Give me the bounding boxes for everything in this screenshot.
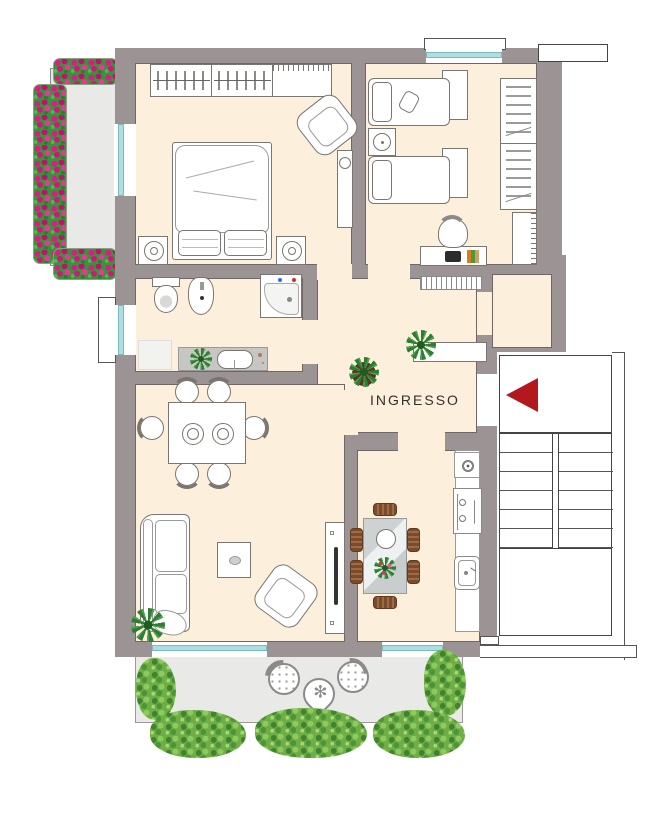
dining-table [168,402,246,464]
pillow-crease [228,247,264,248]
soap-dots [258,353,262,357]
bidet-tap [200,282,204,290]
balcony-door-window [118,124,124,196]
sofa-cushion [155,574,187,614]
washing-machine [138,340,172,370]
books-icon [467,250,479,263]
wardrobe-second [500,78,537,210]
shelf-unit [512,212,537,265]
toy-on-bed [397,89,421,114]
desk-chair-back [437,215,467,245]
terrace-bush-row-1 [150,710,246,758]
faucet-dot [459,499,466,506]
console-plant-icon [406,330,436,360]
dining-chair [207,462,231,486]
kitchen-chair [350,528,363,552]
floor-plant-icon [349,357,379,387]
dining-chair [175,380,199,404]
laptop-icon [445,251,461,262]
kitchen-chair [350,560,363,584]
bathroom-plant-icon [190,348,212,370]
entrance-label: INGRESSO [340,392,490,408]
room-closet [492,274,552,348]
pillow-right [224,230,267,256]
wardrobe-module-2 [212,65,273,96]
kitchen-window [382,645,443,651]
bedroom2-window [426,52,502,58]
toilet-bowl [154,285,178,313]
stairwell-bottom-edge [480,645,637,658]
floor-plan: INGRESSO [0,0,650,814]
burner-icon [462,460,474,472]
desk-chair [438,218,468,248]
stair-bottom-step [480,636,499,645]
stair-lower-landing [499,548,612,636]
wardrobe-divider [501,143,536,144]
tv-cabinet [325,522,345,634]
vanity-sink [217,350,253,369]
bidet [188,277,214,315]
kitchen-chair [407,560,420,584]
nightstand-right [276,236,306,265]
wardrobe-main [150,64,332,97]
entrance-arrow-icon [506,378,538,412]
flower-box-bottom [53,248,117,280]
tap-hot-dot [292,278,296,282]
shelf-ticks [531,213,536,264]
wicker-chair-right [337,661,369,693]
pillow [372,82,392,122]
door-bedroom-second [368,264,410,280]
star-plant-icon: ✻ [310,683,330,703]
coffee-table-decor [229,556,241,565]
cabinet-knob [330,621,334,625]
plate-icon [182,423,204,445]
wardrobe-shelf-section [273,65,331,71]
plate-icon [376,529,396,549]
door-bathroom [302,320,318,364]
desk [420,246,487,266]
wicker-chair-left [268,663,300,695]
nightstand-left [138,236,168,265]
corner-shower [260,274,302,318]
hanger-rail [153,80,210,81]
round-table-dot [381,141,384,144]
table-plant-bowl-icon [374,557,396,579]
plate-inner [187,428,199,440]
kitchen-chair [407,528,420,552]
stair-rail-divider [552,434,559,549]
cooktop [454,452,480,478]
duvet [175,145,269,233]
stair-flight-right [559,434,613,549]
pillow-left [178,230,221,256]
folded-clothes-icon [506,85,531,133]
stair-flight-left [500,434,553,549]
radiator-hall [420,276,482,290]
kitchen-chair [373,503,397,516]
door-kitchen [398,432,445,451]
plate-icon [212,423,234,445]
fan-icon [339,157,351,169]
door-closet [477,292,492,335]
pillow-crease [182,239,218,240]
armchair-seat [305,104,351,150]
adjoining-wall-top-right [538,44,608,62]
shower-tray [264,283,299,315]
table-lamp-inner [150,247,158,255]
terrace-bush-row-3 [373,710,465,758]
stairwell-outer-wall-top [612,352,625,353]
coffee-table [217,542,251,578]
flower-box-side [33,84,67,264]
dining-chair [207,380,231,404]
armchair-seat [261,575,308,622]
double-bed [172,142,272,260]
cabinet-knob [330,531,334,535]
hanger-rail [214,80,271,81]
terrace-bush-row-2 [255,708,367,758]
shower-drain [287,297,292,302]
dining-chair [175,462,199,486]
stair-flights [499,433,612,548]
single-bed-top [368,78,450,126]
sink-divider [234,360,235,369]
living-window [152,645,267,651]
terrace-bush-left-vertical [136,658,176,720]
table-lamp-inner [288,247,296,255]
basin-drain [464,571,468,575]
kitchen-chair [373,596,397,609]
sofa-cushion [155,520,187,572]
dresser [337,150,353,228]
faucet-dot [459,515,466,522]
stairwell-outer-wall-right [624,352,625,660]
bathroom-window [118,305,124,355]
terrace-bush-right-vertical [424,650,466,716]
pillow-crease [228,239,264,240]
folded-clothes-icon [506,149,531,197]
tap-cold-dot [278,278,282,282]
dining-chair [140,416,164,440]
pillow [372,160,392,200]
kitchen-double-sink [453,488,482,534]
kitchen-basin [454,556,480,590]
flower-box-top [53,58,118,85]
plate-inner [217,428,229,440]
single-bed-bottom [368,156,450,204]
wardrobe-module-1 [151,65,212,96]
kitchen-glass-table [363,518,407,594]
round-side-table [368,128,396,156]
living-corner-plant-icon [131,608,165,642]
door-bedroom-main [317,264,352,280]
pillow-crease [182,247,218,248]
tv-icon [334,547,338,605]
bidet-drain [200,296,204,300]
